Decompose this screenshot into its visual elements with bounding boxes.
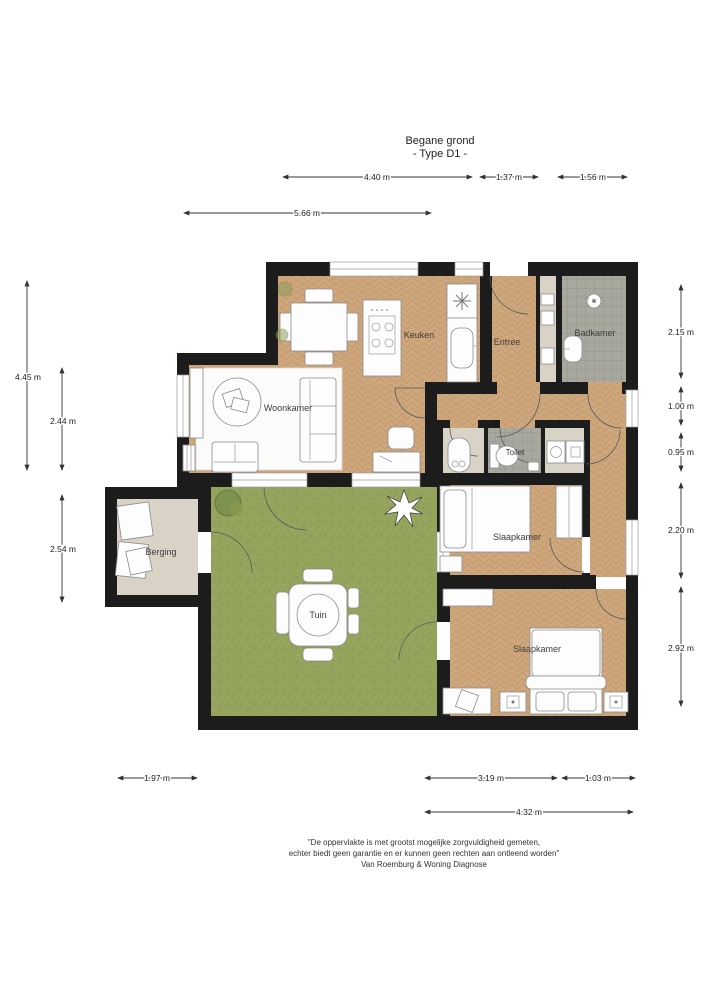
dim-top-4: 5.66 m — [294, 208, 320, 218]
label-berging: Berging — [145, 547, 176, 557]
label-tuin: Tuin — [309, 610, 326, 620]
storage-box — [117, 502, 153, 540]
label-slaapkamer1: Slaapkamer — [493, 532, 541, 542]
dining-table — [291, 303, 347, 351]
dim-right-4: 2.20 m — [668, 525, 694, 535]
dining-chair — [305, 352, 333, 365]
dim-bottom-1: 1.97 m — [144, 773, 170, 783]
desk — [443, 589, 493, 606]
label-slaapkamer2: Slaapkamer — [513, 644, 561, 654]
title-line2: - Type D1 - — [413, 148, 468, 160]
title-line1: Begane grond — [405, 135, 474, 147]
dim-top-3: 1.56 m — [580, 172, 606, 182]
dim-bottom-2: 3.19 m — [478, 773, 504, 783]
label-toilet: Toilet — [506, 448, 525, 457]
dim-bottom-4: 4.32 m — [516, 807, 542, 817]
label-badkamer: Badkamer — [574, 328, 615, 338]
garden-chair — [276, 592, 289, 634]
dim-right-3: 0.95 m — [668, 447, 694, 457]
dim-top-1: 4.40 m — [364, 172, 390, 182]
radiator — [183, 445, 195, 471]
dim-right-1: 2.15 m — [668, 327, 694, 337]
dining-chair — [305, 289, 333, 302]
label-woonkamer: Woonkamer — [264, 403, 312, 413]
floorplan-page: Begane grond - Type D1 - — [0, 0, 707, 1000]
plan-title: Begane grond - Type D1 - — [405, 135, 474, 160]
dim-right-2: 1.00 m — [668, 401, 694, 411]
window-woonkamer-left — [177, 375, 189, 437]
garden-chair — [303, 569, 333, 582]
garden-sliding-door — [232, 473, 307, 487]
disclaimer-line3: Van Roemburg & Woning Diagnose — [361, 860, 488, 869]
dim-right-5: 2.92 m — [668, 643, 694, 653]
plant — [276, 329, 288, 341]
pillow — [444, 490, 466, 548]
floorplan-canvas: Begane grond - Type D1 - — [0, 0, 707, 1000]
dim-top-2: 1.37 m — [496, 172, 522, 182]
window-kitchen-sink-top — [455, 262, 483, 276]
dryer — [566, 441, 584, 463]
window-kitchen-top — [330, 262, 418, 276]
window-hall-right — [626, 390, 638, 427]
dim-left-1: 4.45 m — [15, 372, 41, 382]
sofa — [300, 378, 336, 462]
label-entree: Entree — [494, 337, 521, 347]
disclaimer: "De oppervlakte is met grootst mogelijke… — [289, 838, 560, 869]
window-woonkamer-bottom — [352, 473, 420, 487]
garden-chair — [303, 648, 333, 661]
washer — [547, 441, 565, 463]
garden-chair — [348, 614, 359, 634]
floor-corridor — [590, 480, 626, 577]
bed-blanket-roll — [526, 676, 606, 689]
dim-left-2: 2.44 m — [50, 416, 76, 426]
plant — [278, 282, 292, 296]
label-keuken: Keuken — [404, 330, 435, 340]
desk — [373, 452, 420, 472]
boiler — [448, 438, 470, 472]
disclaimer-line1: "De oppervlakte is met grootst mogelijke… — [308, 838, 540, 847]
disclaimer-line2: echter biedt geen garantie en er kunnen … — [289, 849, 560, 858]
pillow — [536, 692, 564, 711]
tv-cabinet — [190, 368, 203, 438]
toilet-basin — [528, 462, 539, 471]
window-corridor-right — [626, 520, 638, 575]
pillow — [568, 692, 596, 711]
dim-bottom-3: 1.03 m — [585, 773, 611, 783]
dim-left-3: 2.54 m — [50, 544, 76, 554]
garden-chair — [348, 588, 359, 608]
floor-meter-closet — [540, 276, 556, 382]
kitchen-sink — [451, 328, 473, 368]
desk-chair — [388, 427, 414, 449]
side-table — [440, 556, 462, 572]
